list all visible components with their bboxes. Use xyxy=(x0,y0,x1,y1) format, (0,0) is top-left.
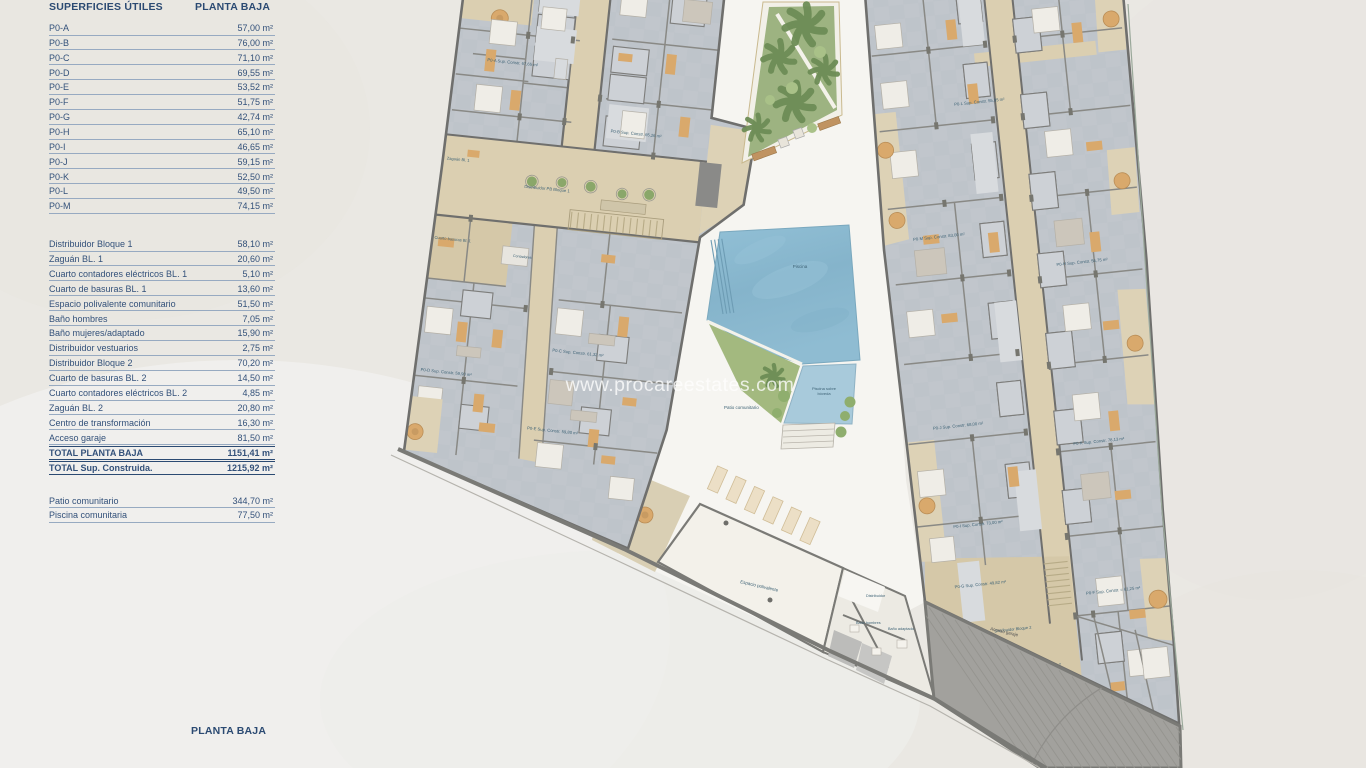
svg-text:Baño adaptado: Baño adaptado xyxy=(888,627,914,631)
svg-text:www.procareestates.com: www.procareestates.com xyxy=(565,374,795,396)
svg-text:Distribuidor: Distribuidor xyxy=(866,594,886,598)
svg-text:Piscina: Piscina xyxy=(793,264,808,269)
svg-text:bóveda: bóveda xyxy=(817,391,831,396)
svg-text:Patio comunitario: Patio comunitario xyxy=(724,405,759,410)
svg-text:Baño hombres: Baño hombres xyxy=(856,621,881,625)
